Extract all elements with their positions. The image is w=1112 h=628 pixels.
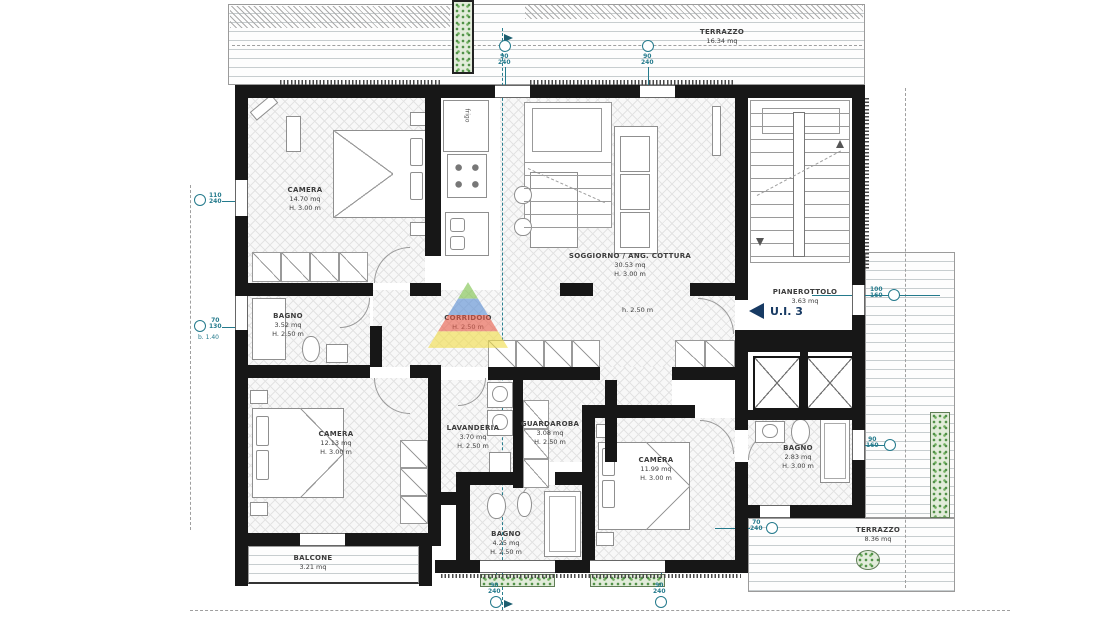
room-name: PIANEROTTOLO: [773, 288, 838, 297]
wardrobe-cell: [281, 252, 310, 282]
wardrobe-cell: [544, 340, 572, 368]
wardrobe-cell: [675, 340, 705, 368]
room-label-camera-2: CAMERA 12.13 mq H. 3.00 m: [319, 430, 354, 457]
outdoor-area: 16.34 mq: [700, 37, 744, 46]
wall-segment: [555, 560, 590, 573]
wall-segment: [456, 472, 470, 563]
window-marker: 100 160: [870, 287, 883, 300]
bidet: [517, 492, 532, 517]
room-name: CAMERA: [639, 456, 674, 465]
room-height: H. 2.50 m: [490, 548, 522, 557]
wall-segment: [748, 505, 760, 518]
marker-height: 130: [209, 324, 222, 330]
window: [852, 285, 865, 315]
toilet: [791, 419, 810, 445]
room-area: 12.13 mq: [319, 439, 354, 448]
room-name: BAGNO: [272, 312, 304, 321]
wall-segment: [235, 283, 373, 296]
terrace-dashed-line: [905, 88, 906, 588]
marker-line: [222, 201, 235, 202]
room-area: 3.08 mq: [521, 429, 579, 438]
pillow: [410, 172, 423, 200]
floor-plan: frigo: [0, 0, 1112, 628]
window-marker: 90 240: [653, 583, 666, 596]
room-height: H. 3.00 m: [639, 474, 674, 483]
entrance-arrow-icon: [749, 303, 764, 319]
window: [495, 85, 530, 98]
nightstand: [596, 532, 614, 546]
window-marker: 90 240: [498, 54, 511, 67]
toilet: [487, 493, 506, 519]
ceiling-height-note: h. 2.50 m: [622, 306, 653, 314]
unit-label: U.I. 3: [770, 305, 803, 318]
basin: [762, 424, 778, 438]
pillow: [410, 138, 423, 166]
wall-segment: [748, 85, 865, 98]
wardrobe-column: [400, 440, 428, 524]
wall-segment: [235, 85, 495, 98]
outdoor-name: BALCONE: [293, 554, 332, 563]
wardrobe-row: [252, 252, 368, 282]
sofa-cushion: [620, 136, 650, 172]
pillow: [602, 480, 615, 508]
marker-height: 240: [653, 589, 666, 595]
washbasin: [326, 344, 348, 363]
wardrobe-cell: [400, 468, 428, 496]
room-area: 11.99 mq: [639, 465, 674, 474]
stair-arrow-up: [836, 140, 844, 148]
window-marker-circle: [499, 40, 511, 52]
wall-segment: [790, 505, 865, 518]
window: [480, 560, 555, 573]
window-marker-circle: [642, 40, 654, 52]
balcony-door: [300, 533, 345, 546]
wall-segment: [470, 472, 520, 485]
balcony-deck: [248, 546, 419, 584]
label-balcone: BALCONE 3.21 mq: [293, 554, 332, 572]
wall-segment: [748, 330, 865, 352]
desk: [286, 116, 301, 152]
room-area: 3.70 mq: [447, 433, 500, 442]
wall-segment: [235, 330, 248, 533]
wall-segment: [672, 367, 735, 380]
sofa-cushion: [620, 174, 650, 210]
room-name: GUARDAROBA: [521, 420, 579, 429]
wardrobe-cell: [516, 340, 544, 368]
window-marker: 90 240: [488, 583, 501, 596]
sink-bowl: [450, 218, 465, 232]
wall-segment: [735, 85, 748, 300]
elevator-shaft: [806, 356, 854, 410]
nightstand: [250, 502, 268, 516]
marker-height: 240: [750, 526, 763, 532]
wardrobe-cell: [252, 252, 281, 282]
marker-height: 240: [641, 60, 654, 66]
room-label-lavanderia: LAVANDERIA 3.70 mq H. 2.50 m: [447, 424, 500, 451]
window: [235, 296, 248, 330]
room-label-soggiorno: SOGGIORNO / ANG. COTTURA 30.53 mq H. 3.0…: [569, 252, 691, 279]
window: [590, 560, 665, 573]
room-name: BAGNO: [782, 444, 814, 453]
room-height: H. 3.00 m: [319, 448, 354, 457]
label-terrazzo-top: TERRAZZO 16.34 mq: [700, 28, 744, 46]
property-dashed-line: [190, 185, 191, 530]
window: [852, 430, 865, 460]
bed-fold: [300, 453, 344, 498]
pillow: [256, 450, 269, 480]
room-label-bagno-2: BAGNO 4.25 mq H. 2.50 m: [490, 530, 522, 557]
window-marker-circle: [655, 596, 667, 608]
terrace-door: [760, 505, 790, 518]
room-height: H. 3.00 m: [569, 270, 691, 279]
room-height: H. 2.50 m: [521, 438, 579, 447]
label-terrazzo-bottom: TERRAZZO 8.36 mq: [856, 526, 900, 544]
room-name: CAMERA: [319, 430, 354, 439]
room-area: 4.25 mq: [490, 539, 522, 548]
window-marker-circle: [490, 596, 502, 608]
room-label-bagno-1: BAGNO 3.52 mq H. 2.50 m: [272, 312, 304, 339]
room-label-camera-3: CAMERA 11.99 mq H. 3.00 m: [639, 456, 674, 483]
tv-panel: [712, 106, 721, 156]
washer-drum: [492, 386, 508, 402]
outdoor-name: TERRAZZO: [700, 28, 744, 37]
outdoor-area: 3.21 mq: [293, 563, 332, 572]
room-name: BAGNO: [490, 530, 522, 539]
marker-height: 160: [870, 293, 883, 299]
stove: [447, 154, 487, 198]
marker-line: [505, 67, 506, 85]
hatch-strip: [230, 6, 450, 28]
hatch-strip: [525, 5, 863, 19]
wall-segment: [800, 352, 808, 414]
wall-segment: [419, 533, 432, 586]
property-dashed-line: [190, 610, 1010, 611]
window-marker-circle: [766, 522, 778, 534]
window-marker: 70 130: [209, 318, 222, 331]
marker-height: 240: [498, 60, 511, 66]
wall-segment: [425, 98, 441, 256]
wall-segment: [560, 283, 593, 296]
room-height: H. 3.00 m: [782, 462, 814, 471]
shower-frame: [824, 423, 846, 479]
window-marker: 90 240: [641, 54, 654, 67]
pillow: [256, 416, 269, 446]
marker-height: 240: [488, 589, 501, 595]
window-marker: 110 240: [209, 193, 222, 206]
property-dashed-line: [232, 45, 862, 46]
wardrobe-cell: [523, 459, 549, 488]
bed-fold: [646, 486, 690, 530]
watermark-pyramid: [428, 282, 508, 348]
room-label-guardaroba: GUARDAROBA 3.08 mq H. 2.50 m: [521, 420, 579, 447]
section-flag: [504, 600, 513, 608]
room-name: CAMERA: [288, 186, 323, 195]
wall-segment: [235, 98, 248, 180]
window: [235, 180, 248, 216]
wall-segment: [735, 462, 748, 560]
wall-segment: [530, 85, 640, 98]
sink-bowl: [450, 236, 465, 250]
window-marker-circle: [194, 194, 206, 206]
wall-segment: [595, 405, 695, 418]
stair-rail: [793, 112, 805, 257]
wall-segment: [410, 365, 441, 378]
room-label-camera-1: CAMERA 14.70 mq H. 3.00 m: [288, 186, 323, 213]
internal-stair-steps: [524, 150, 612, 228]
stair-arrow-down: [756, 238, 764, 246]
internal-stair-landing: [532, 108, 602, 152]
planter-right: [930, 412, 950, 518]
wardrobe-cell: [400, 440, 428, 468]
wall-segment: [435, 560, 480, 573]
window-marker-circle: [194, 320, 206, 332]
room-label-bagno-3: BAGNO 2.83 mq H. 3.00 m: [782, 444, 814, 471]
window-marker: 90 160: [866, 437, 879, 450]
agency-watermark: [428, 282, 508, 348]
wardrobe-cell: [310, 252, 339, 282]
corner-plant: [856, 550, 880, 570]
wardrobe-cell: [400, 496, 428, 524]
room-height: H. 2.50 m: [272, 330, 304, 339]
wall-segment: [605, 380, 617, 462]
window-marker-circle: [888, 289, 900, 301]
room-area: 3.52 mq: [272, 321, 304, 330]
wall-segment: [235, 365, 370, 378]
insulation-strip: [441, 574, 741, 578]
elevator-shaft: [753, 356, 801, 410]
bed-fold: [333, 130, 393, 174]
terrace-bottom-right: [748, 518, 955, 592]
wardrobe-cell: [339, 252, 368, 282]
sofa-cushion: [620, 212, 650, 248]
marker-line: [222, 327, 235, 328]
bed-fold: [333, 174, 393, 218]
wall-segment: [690, 283, 735, 296]
fridge-label: frigo: [463, 109, 470, 123]
wall-segment: [582, 405, 595, 563]
room-height: H. 2.50 m: [447, 442, 500, 451]
wall-segment: [441, 492, 461, 505]
wall-segment: [748, 410, 865, 420]
sill-note: b. 1.40: [198, 334, 219, 341]
wall-segment: [488, 367, 600, 380]
room-label-pianerottolo: PIANEROTTOLO 3.63 mq: [773, 288, 838, 306]
room-name: LAVANDERIA: [447, 424, 500, 433]
wall-segment: [735, 330, 748, 430]
insulation-strip: [865, 98, 869, 270]
room-name: SOGGIORNO / ANG. COTTURA: [569, 252, 691, 261]
wardrobe-row: [675, 340, 735, 368]
wall-segment: [428, 378, 441, 533]
wardrobe-cell: [572, 340, 600, 368]
shower-frame: [549, 496, 576, 552]
marker-height: 160: [866, 443, 879, 449]
wall-segment: [370, 326, 382, 367]
wall-segment: [852, 98, 865, 285]
marker-height: 240: [209, 199, 222, 205]
wall-segment: [555, 472, 582, 485]
room-height: H. 3.00 m: [288, 204, 323, 213]
wardrobe-cell: [705, 340, 735, 368]
wall-segment: [235, 533, 248, 586]
room-area: 30.53 mq: [569, 261, 691, 270]
toilet: [302, 336, 320, 362]
room-area: 2.83 mq: [782, 453, 814, 462]
window: [640, 85, 675, 98]
window-marker-circle: [884, 439, 896, 451]
window-marker: 70 240: [750, 520, 763, 533]
outdoor-area: 8.36 mq: [856, 535, 900, 544]
outdoor-name: TERRAZZO: [856, 526, 900, 535]
planter-top: [452, 0, 474, 74]
room-area: 14.70 mq: [288, 195, 323, 204]
nightstand: [250, 390, 268, 404]
wall-segment: [665, 560, 748, 573]
